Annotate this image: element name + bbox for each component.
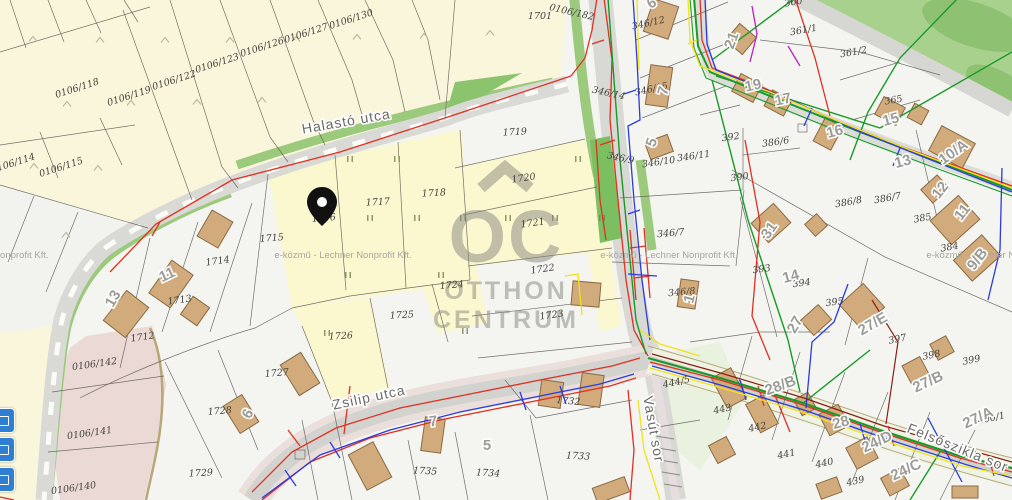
provider-watermark-e-k-zm-lechner-nonprofit-kft-: e-közmű - Lechner Nonprofit Kft. [274,250,411,261]
house-number-5: 5 [483,437,491,454]
parcel-label-1727: 1727 [264,367,290,380]
parcel-label-1718: 1718 [422,187,447,199]
parcel-label-1735: 1735 [413,465,438,477]
parcel-label-1733: 1733 [566,450,591,462]
map-control-button-2[interactable] [0,437,15,462]
parcel-label-1715: 1715 [259,232,284,245]
house-number-19: 19 [743,76,763,96]
parcel-label-1717: 1717 [366,196,392,208]
parcel-label-1719: 1719 [503,126,528,138]
provider-watermark-e-k-zm-lechner-nonprofit-kft-: e-közmű - Lechner Nonprofit Kft. [600,250,737,261]
map-viewport[interactable]: OC OTTHON CENTRUM e-közmű - Lechner Nonp… [0,0,1012,500]
map-canvas[interactable]: OC OTTHON CENTRUM e-közmű - Lechner Nonp… [0,0,1012,500]
parcel-label-1725: 1725 [390,309,415,321]
control-icon [0,416,9,426]
parcel-label-1732: 1732 [556,395,581,408]
parcel-label-1724: 1724 [439,279,464,292]
parcel-label-1729: 1729 [189,467,214,479]
control-icon [0,475,9,485]
control-icon [0,445,9,455]
provider-watermark-e-k-zm-lechner-nonprofit-kft-: e-közmű - Lechner Nonprofit Kft. [0,250,49,261]
parcel-label-1726: 1726 [329,330,354,342]
parcel-label-1728: 1728 [207,405,232,418]
map-control-button-1[interactable] [0,408,15,433]
parcel-label-1734: 1734 [476,467,501,479]
map-control-button-3[interactable] [0,467,15,492]
house-number-17: 17 [773,90,793,110]
